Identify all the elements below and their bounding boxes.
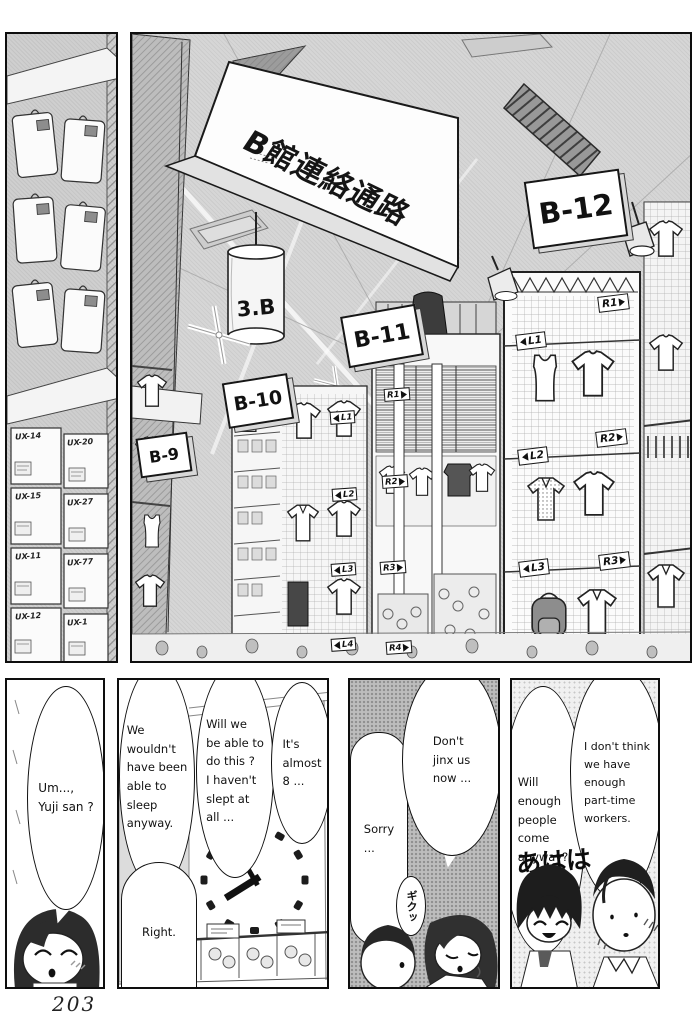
aisle-marker-label: R4: [389, 642, 402, 653]
aisle-marker-label: L3: [342, 564, 354, 575]
shelf-strip-art: [7, 34, 118, 663]
right-arrow-icon: [401, 390, 408, 398]
bubble-text: Don't jinx us now ...: [433, 732, 471, 788]
aisle-marker: L1: [330, 410, 356, 425]
right-arrow-icon: [620, 556, 627, 565]
aisle-marker: L2: [332, 487, 358, 502]
aisle-marker: R3: [380, 560, 407, 575]
bubble-text: Will we be able to do this ? I haven't s…: [206, 715, 264, 827]
right-arrow-icon: [617, 433, 624, 442]
aisle-marker: L3: [331, 562, 357, 577]
aisle-marker: L4: [331, 637, 357, 652]
bubble-text: We wouldn't have been able to sleep anyw…: [127, 721, 188, 833]
right-arrow-icon: [397, 563, 404, 571]
dialogue-panel-1: Um..., Yuji san ?: [5, 678, 105, 989]
aisle-marker-label: R1: [387, 389, 400, 400]
left-arrow-icon: [335, 491, 342, 499]
speech-bubble: Right.: [121, 862, 197, 989]
aisle-marker-label: R1: [601, 297, 618, 311]
speech-bubble: Um..., Yuji san ?: [27, 686, 105, 910]
left-arrow-icon: [520, 338, 527, 347]
left-arrow-icon: [334, 566, 341, 574]
aisle-marker-label: R2: [599, 432, 616, 446]
aisle-marker: R1: [384, 387, 411, 402]
bubble-text: Sorry ...: [364, 820, 394, 857]
right-arrow-icon: [399, 477, 406, 485]
aisle-marker-label: L3: [530, 561, 545, 575]
shelf-strip-panel: UX-14 UX-20 UX-15 UX-27 UX-11 UX-77 UX-1…: [5, 32, 118, 663]
left-arrow-icon: [334, 641, 341, 649]
bubble-text: Um..., Yuji san ?: [38, 779, 93, 818]
aisle-marker-label: R2: [385, 476, 398, 487]
right-arrow-icon: [619, 298, 626, 307]
aisle-marker-label: R3: [602, 555, 619, 569]
left-arrow-icon: [523, 565, 530, 574]
speech-bubble: Don't jinx us now ...: [402, 678, 500, 856]
dialogue-panel-4: Will enough people come anyway? I don't …: [510, 678, 660, 989]
bubble-text: Right.: [142, 923, 176, 942]
aisle-marker: R2: [382, 474, 409, 489]
character-illustration-pair2: [512, 831, 660, 989]
character-illustration-girl1: [7, 901, 105, 989]
dialogue-panel-2: We wouldn't have been able to sleep anyw…: [117, 678, 329, 989]
aisle-marker-label: L2: [343, 489, 355, 500]
store-panel: B館連絡通路 3.B B-9 B-10 B-11 B-12 L1 L2 L3 R…: [130, 32, 692, 663]
section-sign-b9: B-9: [135, 432, 192, 479]
bubble-text: I don't think we have enough part-time w…: [584, 738, 650, 827]
speech-bubble: It's almost 8 ...: [271, 682, 329, 844]
left-arrow-icon: [522, 453, 529, 462]
aisle-marker-label: L2: [529, 449, 544, 463]
aisle-marker: R4: [386, 640, 413, 655]
manga-page: UX-14 UX-20 UX-15 UX-27 UX-11 UX-77 UX-1…: [0, 0, 700, 1032]
dialogue-panel-3: Sorry ... Don't jinx us now ... ギクッ: [348, 678, 500, 989]
bubble-text: It's almost 8 ...: [283, 735, 322, 791]
right-arrow-icon: [403, 643, 410, 651]
aisle-marker-label: R3: [383, 562, 396, 573]
page-number: 203: [52, 992, 96, 1016]
section-sign-b12: B-12: [524, 169, 629, 250]
left-arrow-icon: [333, 414, 340, 422]
aisle-marker-label: L1: [341, 412, 353, 423]
aisle-marker-label: L4: [342, 639, 354, 650]
character-illustration-pair: [350, 891, 500, 989]
aisle-marker-label: L1: [527, 334, 542, 348]
